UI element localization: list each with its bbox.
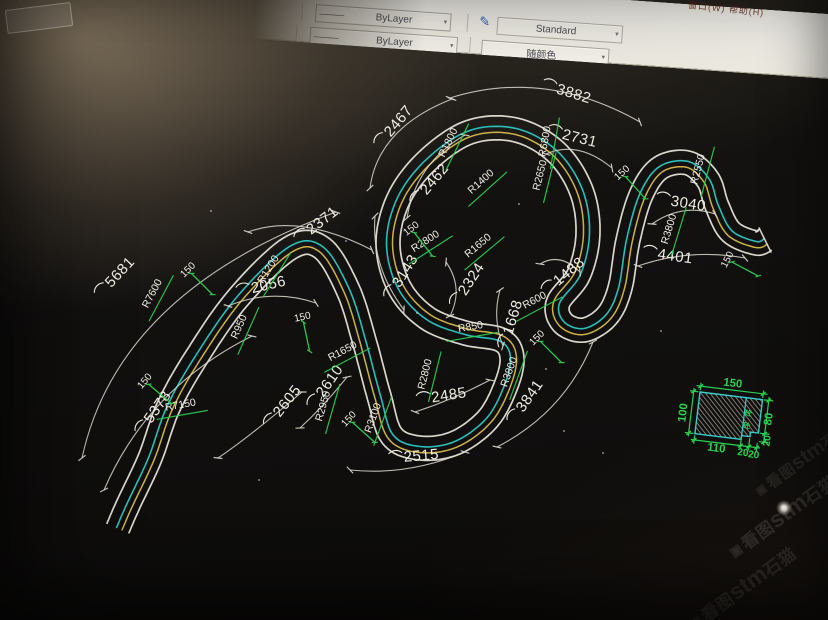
radius-label: R2650 <box>531 159 550 192</box>
dim-label: ⌒2515 <box>388 446 440 467</box>
dust-speck <box>545 368 547 370</box>
dim-label: ⌒2467 <box>371 102 417 152</box>
width-tick-label: 150 <box>612 163 632 183</box>
radius-label: R1650 <box>326 339 359 364</box>
radius-label: R850 <box>457 319 484 335</box>
dust-speck <box>416 312 418 314</box>
radius-label: R3800 <box>498 355 520 388</box>
radius-label: R2800 <box>416 358 435 391</box>
dim-label: ⌒5681 <box>91 254 138 303</box>
width-tick-label: 150 <box>719 249 737 269</box>
dust-speck <box>345 240 347 242</box>
radius-leader <box>447 332 498 341</box>
dim-label: ⌒2605 <box>260 382 305 433</box>
monitor-photo: ——— ByLayer ▾ ✎ Standard ▾ ——— ByLayer ▾… <box>0 0 828 620</box>
dim-label: ⌒4401 <box>641 244 694 268</box>
dim-label: ⌒2462 <box>407 160 453 210</box>
dust-speck <box>210 210 212 212</box>
detail-dim-label: 砼 <box>744 408 753 418</box>
width-tick-label: 150 <box>136 371 155 391</box>
width-tick <box>540 341 561 362</box>
detail-dim-label: 20 <box>747 449 760 461</box>
detail-dim-label: 80 <box>762 412 775 426</box>
width-tick-label: 150 <box>293 310 312 324</box>
dim-label: ⌒2371 <box>291 203 342 248</box>
dim-label: ⌒5378 <box>132 388 175 439</box>
radius-label: R1650 <box>462 231 494 260</box>
cross-section-detail: 15010080201102020砼砼 <box>652 369 803 466</box>
detail-dim-label: 砼 <box>743 421 752 431</box>
detail-dim-label: 150 <box>723 377 743 391</box>
cad-canvas: ⌒5681⌒5378⌒2371⌒2056⌒2605⌒2610⌒2515⌒2485… <box>0 0 828 620</box>
width-tick-label: 150 <box>401 219 421 238</box>
dust-speck <box>563 430 565 432</box>
width-tick <box>303 322 309 351</box>
dim-label: ⌒3882 <box>540 76 594 107</box>
dust-speck <box>602 452 604 454</box>
dust-speck <box>258 479 260 481</box>
dimension-layer: ⌒5681⌒5378⌒2371⌒2056⌒2605⌒2610⌒2515⌒2485… <box>78 76 761 492</box>
detail-dim-label: 20 <box>761 434 773 447</box>
radius-label: R3100 <box>362 401 384 434</box>
radius-label: R950 <box>229 313 250 341</box>
width-tick <box>732 262 758 276</box>
detail-dim-label: 110 <box>707 441 727 455</box>
dust-speck <box>660 330 662 332</box>
radius-label: R1400 <box>465 167 496 197</box>
width-tick <box>191 273 212 294</box>
dust-speck <box>518 203 520 205</box>
dim-label: ⌒1668 <box>495 298 526 352</box>
detail-dim-label: 100 <box>676 403 690 423</box>
radius-label: R7600 <box>140 277 165 310</box>
